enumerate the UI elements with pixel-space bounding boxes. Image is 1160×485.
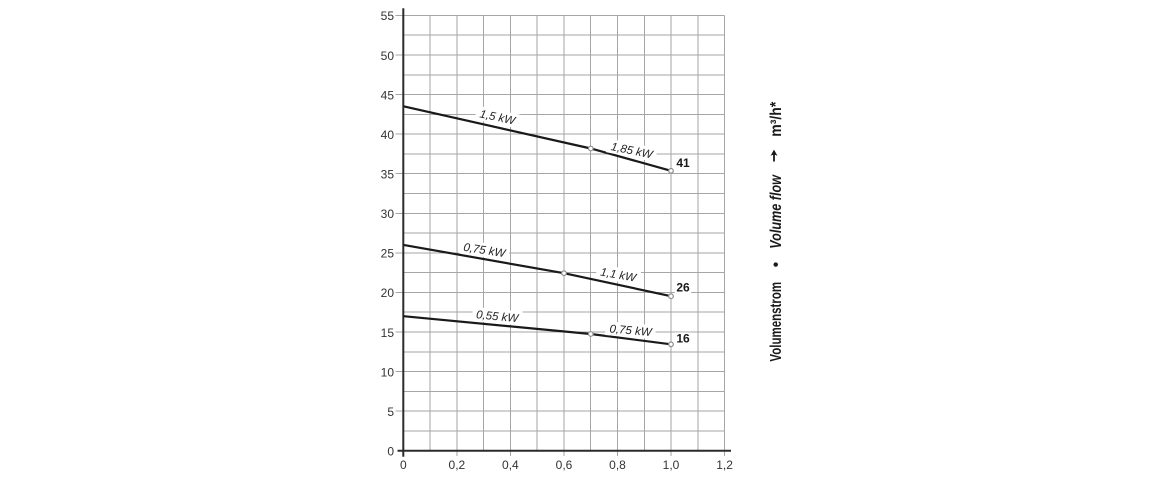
svg-text:20: 20: [381, 286, 395, 300]
svg-text:41: 41: [676, 156, 690, 170]
svg-text:1,2: 1,2: [716, 458, 733, 472]
svg-text:0: 0: [400, 458, 407, 472]
svg-text:0,75 kW: 0,75 kW: [462, 242, 507, 261]
svg-text:55: 55: [381, 9, 395, 23]
svg-text:15: 15: [381, 326, 395, 340]
svg-text:25: 25: [381, 247, 395, 261]
svg-text:50: 50: [381, 49, 395, 63]
svg-text:30: 30: [381, 207, 395, 221]
svg-text:m³/h*: m³/h*: [768, 101, 785, 137]
svg-text:0,4: 0,4: [502, 458, 519, 472]
svg-text:•: •: [768, 262, 785, 267]
svg-text:0,8: 0,8: [609, 458, 626, 472]
svg-text:35: 35: [381, 168, 395, 182]
svg-text:0,6: 0,6: [556, 458, 573, 472]
svg-text:45: 45: [381, 88, 395, 102]
svg-text:0,2: 0,2: [449, 458, 466, 472]
svg-text:Volume flow: Volume flow: [768, 174, 785, 249]
svg-text:1,0: 1,0: [663, 458, 680, 472]
svg-text:10: 10: [381, 365, 395, 379]
svg-text:26: 26: [676, 280, 690, 294]
svg-text:40: 40: [381, 128, 395, 142]
svg-text:5: 5: [387, 405, 394, 419]
svg-text:Volumenstrom: Volumenstrom: [768, 282, 785, 362]
svg-text:16: 16: [676, 331, 690, 345]
svg-text:0: 0: [387, 445, 394, 459]
